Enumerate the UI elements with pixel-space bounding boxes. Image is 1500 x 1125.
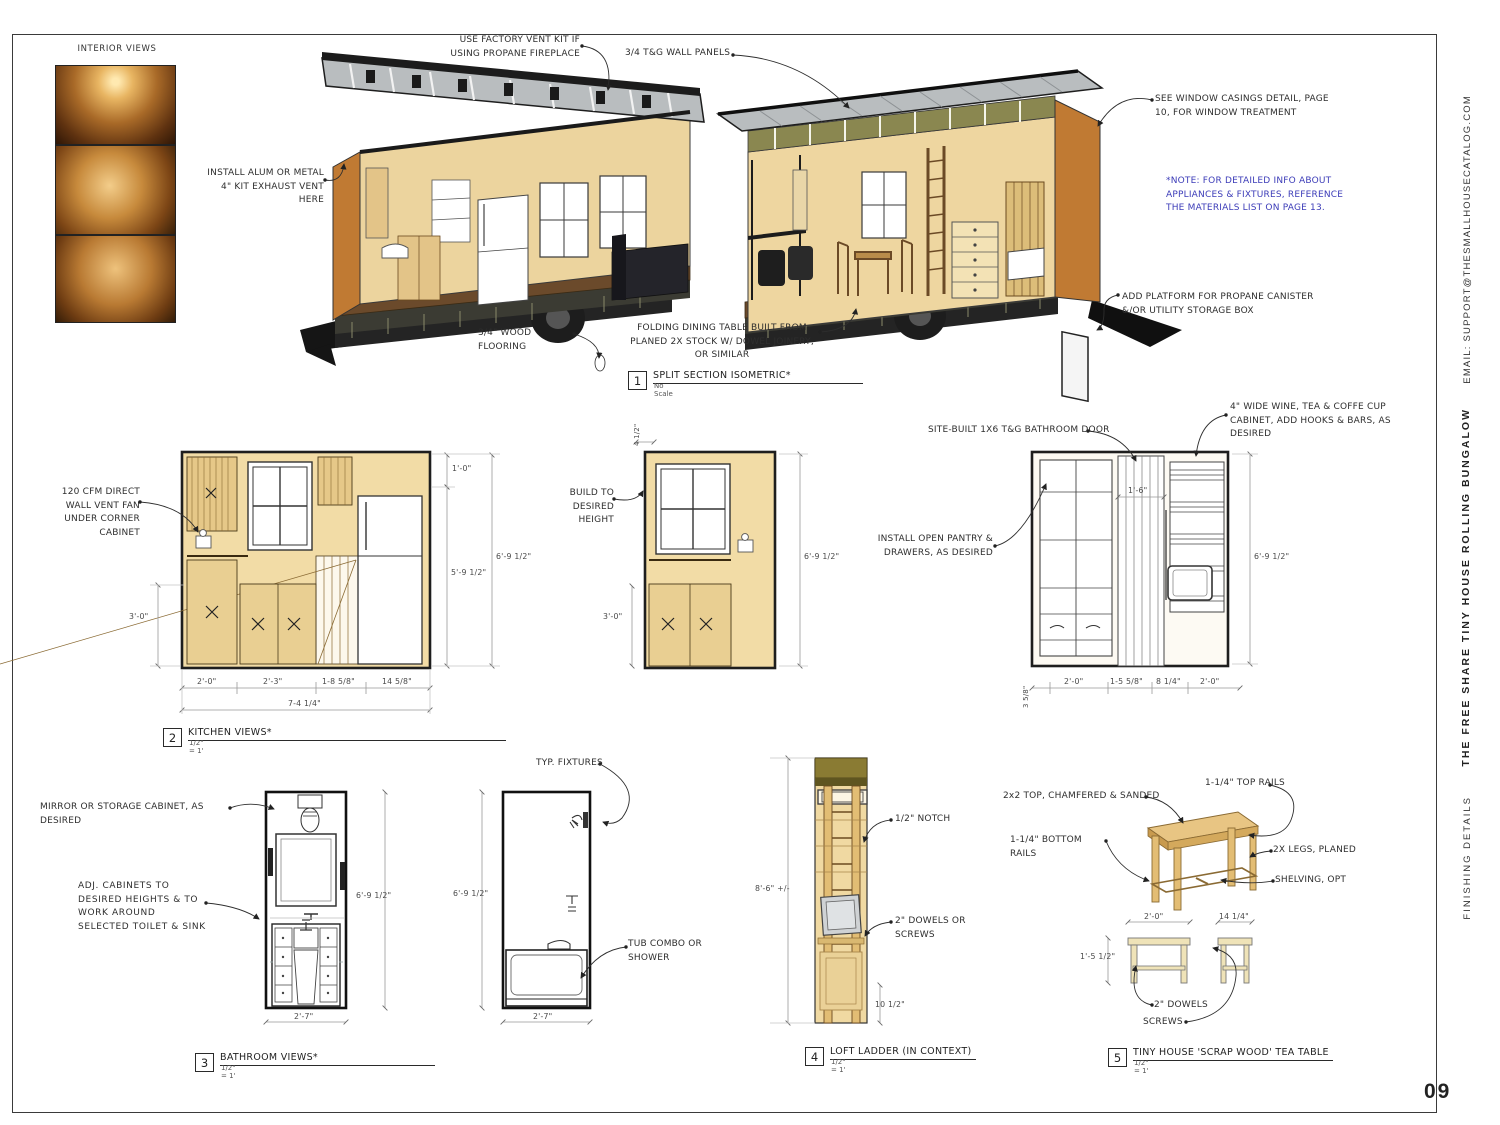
callout-scale-4: 1/2" = 1' [831, 1058, 846, 1074]
dim-bathroom-a-width: 2'-7" [294, 1012, 313, 1021]
interior-photo-desk [55, 235, 176, 323]
sidebar-email: EMAIL: SUPPORT@THESMALLHOUSECATALOG.COM [1462, 95, 1473, 384]
dim-bathroom-b-width: 2'-7" [533, 1012, 552, 1021]
dim-table-height: 1'-5 1/2" [1080, 952, 1115, 961]
note-legs: 2X LEGS, PLANED [1273, 844, 1363, 858]
dim-kitchen-c-b4: 2'-0" [1200, 677, 1219, 686]
callout-scale-1: No Scale [654, 382, 673, 398]
note-ladder-dowels: 2" DOWELS OR SCREWS [895, 915, 973, 942]
callout-number-3: 3 [195, 1053, 214, 1072]
sidebar-section: FINISHING DETAILS [1462, 796, 1473, 920]
dim-kitchen-b-right: 6'-9 1/2" [804, 552, 839, 561]
note-adj-cabinets: ADJ. CABINETS TO DESIRED HEIGHTS & TO WO… [78, 880, 208, 934]
interior-views-label: INTERIOR VIEWS [58, 44, 176, 54]
callout-number-1: 1 [628, 371, 647, 390]
dim-kitchen-a-right-mid: 5'-9 1/2" [451, 568, 486, 577]
callout-title-5: TINY HOUSE 'SCRAP WOOD' TEA TABLE [1133, 1047, 1333, 1061]
callout-number-5: 5 [1108, 1048, 1127, 1067]
note-bottom-rails: 1-1/4" BOTTOM RAILS [1010, 834, 1110, 861]
callout-scale-3: 1/2" = 1' [221, 1064, 236, 1080]
interior-photo-loft [55, 65, 176, 145]
dim-kitchen-c-b2: 1-5 5/8" [1110, 677, 1143, 686]
kitchen-elevation-2-drawing [645, 452, 775, 668]
dim-kitchen-a-left: 3'-0" [129, 612, 148, 621]
note-mirror-cabinet: MIRROR OR STORAGE CABINET, AS DESIRED [40, 801, 232, 828]
note-materials-list: *NOTE: FOR DETAILED INFO ABOUT APPLIANCE… [1166, 175, 1344, 216]
note-vent-kit: USE FACTORY VENT KIT IF USING PROPANE FI… [440, 34, 580, 61]
callout-title-1: SPLIT SECTION ISOMETRIC* [653, 370, 863, 384]
note-shelving: SHELVING, OPT [1275, 874, 1355, 888]
bathroom-elevation-1-drawing [266, 792, 346, 1008]
callout-number-2: 2 [163, 728, 182, 747]
interior-photo-living [55, 145, 176, 235]
note-vent-fan: 120 CFM DIRECT WALL VENT FAN UNDER CORNE… [40, 486, 140, 540]
note-wall-panels: 3/4 T&G WALL PANELS [625, 47, 735, 61]
note-notch: 1/2" NOTCH [895, 813, 985, 827]
note-wine-cabinet: 4" WIDE WINE, TEA & COFFE CUP CABINET, A… [1230, 401, 1412, 442]
note-bathroom-door: SITE-BUILT 1X6 T&G BATHROOM DOOR [928, 424, 1163, 438]
note-top-rails: 1-1/4" TOP RAILS [1205, 777, 1295, 791]
callout-scale-2: 1/2" = 1' [189, 739, 204, 755]
dim-kitchen-b-top: 4 1/2" [633, 424, 641, 446]
kitchen-elevation-1-drawing [0, 452, 430, 668]
note-open-pantry: INSTALL OPEN PANTRY & DRAWERS, AS DESIRE… [848, 533, 993, 560]
dim-ladder-offset: 10 1/2" [875, 1000, 905, 1009]
dim-kitchen-a-b2: 2'-3" [263, 677, 282, 686]
note-tub-combo: TUB COMBO OR SHOWER [628, 938, 708, 965]
dim-kitchen-c-inner: 1'-6" [1128, 486, 1147, 495]
note-exhaust-vent: INSTALL ALUM OR METAL 4" KIT EXHAUST VEN… [200, 167, 324, 208]
dim-kitchen-b-left: 3'-0" [603, 612, 622, 621]
dim-bathroom-a-height: 6'-9 1/2" [356, 891, 391, 900]
callout-number-4: 4 [805, 1047, 824, 1066]
dim-kitchen-c-right: 6'-9 1/2" [1254, 552, 1289, 561]
bathroom-elevation-2-drawing [503, 792, 590, 1008]
dim-table-depth: 14 1/4" [1219, 912, 1249, 921]
split-section-left-drawing [300, 52, 704, 366]
note-table-top: 2x2 TOP, CHAMFERED & SANDED [1003, 790, 1163, 804]
dim-bathroom-b-height: 6'-9 1/2" [453, 889, 488, 898]
note-table-screws: SCREWS [1143, 1016, 1193, 1030]
callout-title-3: BATHROOM VIEWS* [220, 1052, 435, 1066]
dim-kitchen-a-right-top: 1'-0" [452, 464, 471, 473]
dim-table-width: 2'-0" [1144, 912, 1163, 921]
note-wood-flooring: 3/4" WOOD FLOORING [478, 327, 574, 354]
dim-kitchen-c-b0: 3 5/8" [1022, 686, 1030, 708]
dim-kitchen-a-total: 7-4 1/4" [288, 699, 321, 708]
note-build-height: BUILD TO DESIRED HEIGHT [538, 487, 614, 528]
callout-title-4: LOFT LADDER (IN CONTEXT) [830, 1046, 976, 1060]
note-table-dowels: 2" DOWELS [1154, 999, 1224, 1013]
note-propane-platform: ADD PLATFORM FOR PROPANE CANISTER &/OR U… [1122, 291, 1322, 318]
note-dining-table: FOLDING DINING TABLE BUILT FROM PLANED 2… [622, 322, 822, 363]
sidebar-title: THE FREE SHARE TINY HOUSE ROLLING BUNGAL… [1460, 408, 1472, 767]
tea-table-drawing [1128, 812, 1258, 983]
dim-kitchen-a-b4: 14 5/8" [382, 677, 412, 686]
note-typ-fixtures: TYP. FIXTURES [536, 757, 636, 771]
callout-scale-5: 1/2" = 1' [1134, 1059, 1149, 1075]
dim-kitchen-a-b1: 2'-0" [197, 677, 216, 686]
loft-ladder-drawing [815, 758, 867, 1023]
page-number: 09 [1424, 1080, 1451, 1104]
dim-ladder-height: 8'-6" +/- [755, 884, 790, 893]
callout-title-2: KITCHEN VIEWS* [188, 727, 506, 741]
kitchen-elevation-3-drawing [1032, 452, 1228, 666]
dim-kitchen-a-right-full: 6'-9 1/2" [496, 552, 531, 561]
dim-kitchen-c-b1: 2'-0" [1064, 677, 1083, 686]
dim-kitchen-c-b3: 8 1/4" [1156, 677, 1181, 686]
dim-kitchen-a-b3: 1-8 5/8" [322, 677, 355, 686]
plan-sheet: INTERIOR VIEWS USE FACTORY VENT KIT IF U… [0, 0, 1500, 1125]
note-window-casings: SEE WINDOW CASINGS DETAIL, PAGE 10, FOR … [1155, 93, 1335, 120]
